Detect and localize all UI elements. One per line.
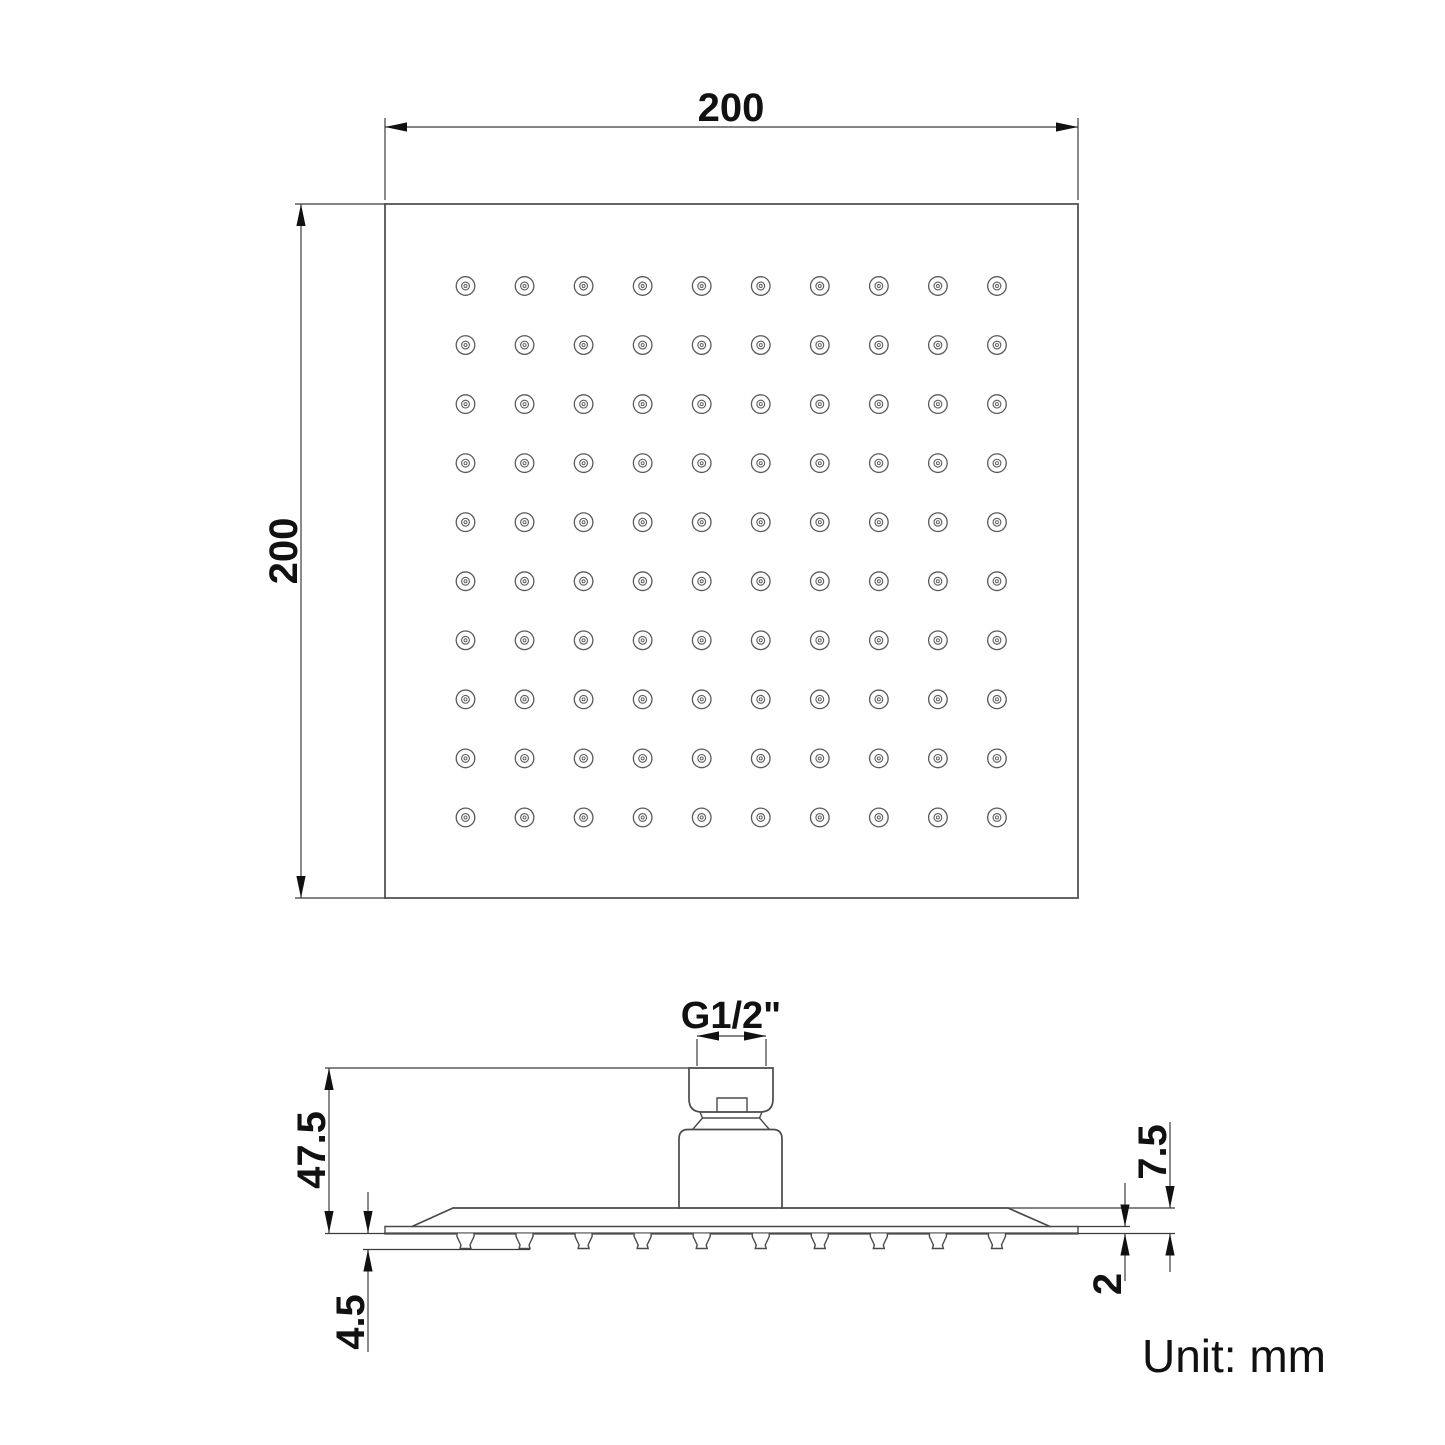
- dim-overall-height-label: 47.5: [290, 1111, 334, 1189]
- arrowhead-down: [1165, 1186, 1174, 1208]
- dim-height: 200: [262, 204, 385, 898]
- nozzle-side-view: [516, 1234, 533, 1249]
- nozzle-side-view: [811, 1234, 828, 1249]
- plate-left-bevel: [412, 1208, 453, 1227]
- thread-size-label: G1/2": [681, 995, 781, 1037]
- arrowhead-down: [324, 1211, 333, 1233]
- ball-joint-body: [679, 1130, 782, 1210]
- nozzle-side-view: [575, 1234, 592, 1249]
- dim-nozzle-height: 4.5: [329, 1192, 373, 1352]
- arrowhead-left: [385, 122, 407, 131]
- nozzle-side-view: [634, 1234, 651, 1249]
- nozzle-side-view: [693, 1234, 710, 1249]
- arrowhead-up: [296, 204, 305, 226]
- dim-rim-height: 7.5: [1131, 1122, 1175, 1272]
- showerhead-face-outline: [385, 204, 1078, 898]
- dim-plate-thickness: 2: [1086, 1183, 1130, 1295]
- plate-right-bevel: [1008, 1208, 1050, 1227]
- arrowhead-down: [363, 1211, 372, 1233]
- drawing-svg: 200 200: [0, 0, 1445, 1445]
- nozzle-side-view: [988, 1234, 1005, 1249]
- arrowhead-up: [1165, 1234, 1174, 1256]
- unit-note: Unit: mm: [1142, 1330, 1326, 1382]
- arrowhead-up: [363, 1250, 372, 1272]
- side-view: G1/2" 47.5 4.5 7.5: [290, 995, 1175, 1352]
- dim-width-label: 200: [698, 86, 765, 130]
- dim-nozzle-height-label: 4.5: [329, 1294, 373, 1350]
- dim-rim-height-label: 7.5: [1131, 1124, 1175, 1180]
- arrowhead-down: [1120, 1205, 1129, 1227]
- swivel-neck: [693, 1112, 769, 1129]
- dim-plate-thickness-label: 2: [1086, 1273, 1130, 1295]
- arrowhead-up: [324, 1068, 333, 1090]
- nozzle-side-view: [457, 1234, 474, 1249]
- top-view: 200 200: [262, 86, 1078, 898]
- nozzle-side-view: [752, 1234, 769, 1249]
- thread-nut: [689, 1068, 773, 1112]
- dim-thread: G1/2": [681, 995, 781, 1066]
- arrowhead-down: [296, 876, 305, 898]
- thread-connector: [689, 1068, 773, 1129]
- arrowhead-right: [1056, 122, 1078, 131]
- head-plate: [325, 1208, 1175, 1250]
- nozzle-side-view: [929, 1234, 946, 1249]
- dim-overall-height: 47.5: [290, 1068, 334, 1233]
- dim-width: 200: [385, 86, 1078, 200]
- nozzle-side-view: [870, 1234, 887, 1249]
- side-view-nozzle-row: [457, 1234, 1005, 1249]
- technical-drawing-page: 200 200: [0, 0, 1445, 1445]
- arrowhead-up: [1120, 1234, 1129, 1256]
- dim-height-label: 200: [262, 518, 306, 585]
